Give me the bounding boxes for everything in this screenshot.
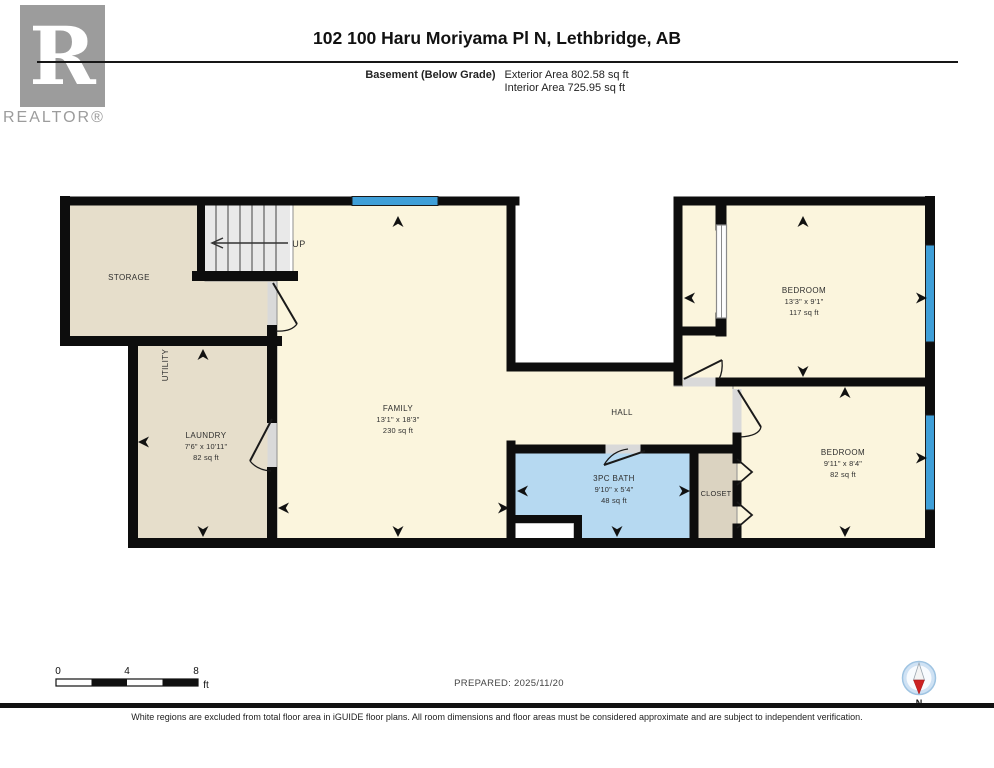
scale-unit: ft [203, 680, 209, 691]
label-closet: CLOSET [701, 489, 732, 498]
scale-tick-0: 0 [55, 666, 61, 677]
label-bedroom-bottom: BEDROOM [821, 448, 865, 457]
window-right-lower [926, 415, 935, 510]
room-fills [61, 197, 930, 547]
window-right-upper [926, 245, 935, 342]
page-title: 102 100 Haru Moriyama Pl N, Lethbridge, … [0, 28, 994, 49]
label-laundry: LAUNDRY [186, 431, 227, 440]
scale-tick-8: 8 [193, 666, 199, 677]
compass-icon: N [903, 662, 936, 709]
exterior-area: Exterior Area 802.58 sq ft [505, 69, 629, 82]
label-bedroom-right-dims: 13'3" x 9'1" [785, 297, 824, 306]
prepared-date: PREPARED: 2025/11/20 [454, 678, 564, 689]
stairs-up-label: UP [292, 239, 306, 249]
scale-tick-4: 4 [124, 666, 130, 677]
floor-plan: UP [0, 0, 994, 768]
label-bath: 3PC BATH [593, 474, 635, 483]
interior-area: Interior Area 725.95 sq ft [505, 82, 629, 95]
label-family-dims: 13'1" x 18'3" [376, 415, 419, 424]
label-family: FAMILY [383, 404, 414, 413]
label-bedroom-right: BEDROOM [782, 286, 826, 295]
room-bath-fill [507, 445, 698, 543]
disclaimer-text: White regions are excluded from total fl… [0, 712, 994, 722]
realtor-brand-text: REALTOR® [3, 109, 123, 127]
floor-summary: Basement (Below Grade) Exterior Area 802… [0, 69, 994, 94]
label-laundry-dims: 7'6" x 10'11" [185, 442, 228, 451]
stairs-fill [205, 201, 290, 271]
floor-label: Basement (Below Grade) [365, 69, 495, 94]
label-storage: STORAGE [108, 273, 150, 282]
interior-window [717, 225, 727, 318]
scale-bar: 0 4 8 ft [55, 666, 209, 691]
label-bedroom-right-area: 117 sq ft [789, 308, 819, 317]
label-bath-dims: 9'10" x 5'4" [595, 485, 634, 494]
footer-divider [0, 703, 994, 708]
label-family-area: 230 sq ft [383, 426, 413, 435]
title-divider [37, 61, 958, 63]
label-hall: HALL [611, 408, 633, 417]
floorplan-page: R REALTOR® 102 100 Haru Moriyama Pl N, L… [0, 0, 994, 768]
label-laundry-area: 82 sq ft [193, 453, 219, 462]
floor-areas: Exterior Area 802.58 sq ft Interior Area… [505, 69, 629, 94]
label-bedroom-bottom-area: 82 sq ft [830, 470, 856, 479]
label-bath-area: 48 sq ft [601, 496, 627, 505]
label-bedroom-bottom-dims: 9'11" x 8'4" [824, 459, 862, 468]
window-top [352, 197, 438, 206]
label-utility: UTILITY [161, 348, 170, 381]
